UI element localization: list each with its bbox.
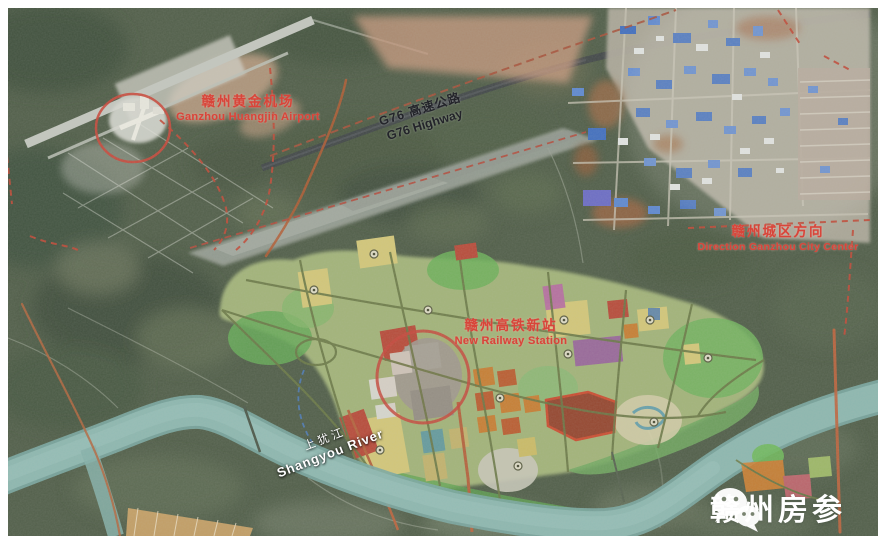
airport-label: 赣州黄金机场 Ganzhou Huangjin Airport — [148, 94, 348, 125]
satellite-map-image — [8, 8, 878, 536]
film-grain — [8, 8, 878, 536]
station-label-zh: 赣州高铁新站 — [436, 318, 586, 335]
airport-label-zh: 赣州黄金机场 — [148, 94, 348, 111]
map-canvas: 赣州黄金机场 Ganzhou Huangjin Airport G76 高速公路… — [8, 8, 878, 536]
city-center-label-zh: 赣州城区方向 — [680, 224, 876, 241]
city-center-label: 赣州城区方向 Direction Ganzhou City Center — [680, 224, 876, 254]
station-label: 赣州高铁新站 New Railway Station — [436, 318, 586, 349]
watermark: 赣州房参 — [710, 485, 846, 529]
city-center-label-en: Direction Ganzhou City Center — [680, 241, 876, 254]
station-label-en: New Railway Station — [436, 335, 586, 349]
page: { "labels": { "airport": {"zh": "赣州黄金机场"… — [0, 0, 886, 546]
airport-label-en: Ganzhou Huangjin Airport — [148, 111, 348, 125]
wechat-icon — [710, 485, 764, 533]
